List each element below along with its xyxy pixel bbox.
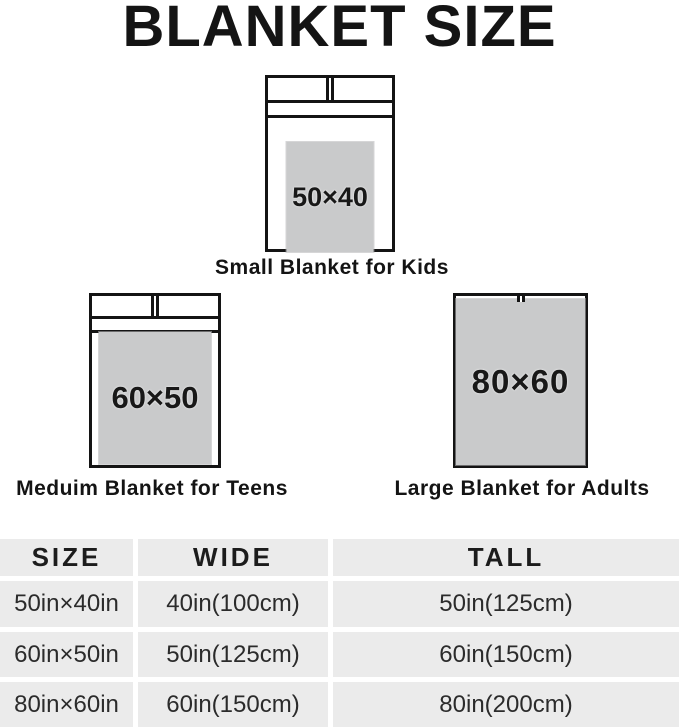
table-header-size: SIZE	[0, 539, 133, 576]
table-cell-tall-r2: 60in(150cm)	[333, 632, 679, 677]
mattress-small: 50×40	[268, 118, 392, 249]
mattress-medium: 60×50	[92, 333, 218, 465]
page-title: BLANKET SIZE	[0, 0, 679, 56]
pillow-divider-icon	[517, 296, 525, 302]
mattress-large: 80×60	[456, 296, 585, 465]
table-cell-size-r1: 50in×40in	[0, 581, 133, 627]
blanket-large: 80×60	[456, 299, 585, 465]
blanket-medium: 60×50	[99, 332, 211, 464]
blanket-size-infographic: BLANKET SIZE 50×40 Small Blanket for Kid…	[0, 0, 679, 728]
table-cell-tall-r3: 80in(200cm)	[333, 682, 679, 727]
table-cell-size-r2: 60in×50in	[0, 632, 133, 677]
blanket-small: 50×40	[287, 142, 374, 252]
table-header-wide: WIDE	[138, 539, 328, 576]
blanket-size-label-medium: 60×50	[111, 380, 198, 416]
pillow-area-small	[268, 78, 392, 103]
pillow-divider-icon	[326, 78, 334, 100]
caption-small: Small Blanket for Kids	[172, 256, 492, 280]
table-cell-wide-r1: 40in(100cm)	[138, 581, 328, 627]
bed-diagram-large: 80×60	[453, 293, 588, 468]
pillow-divider-icon	[151, 296, 159, 316]
table-header-tall: TALL	[333, 539, 679, 576]
table-cell-wide-r2: 50in(125cm)	[138, 632, 328, 677]
sheet-band-small	[268, 103, 392, 118]
bed-diagram-medium: 60×50	[89, 293, 221, 468]
caption-medium: Meduim Blanket for Teens	[0, 477, 312, 501]
table-cell-size-r3: 80in×60in	[0, 682, 133, 727]
size-table: SIZE WIDE TALL 50in×40in 40in(100cm) 50i…	[0, 539, 679, 728]
table-cell-tall-r1: 50in(125cm)	[333, 581, 679, 627]
sheet-band-medium	[92, 319, 218, 333]
bed-diagram-small: 50×40	[265, 75, 395, 252]
pillow-area-medium	[92, 296, 218, 319]
blanket-size-label-small: 50×40	[292, 182, 368, 213]
caption-large: Large Blanket for Adults	[362, 477, 679, 501]
blanket-size-label-large: 80×60	[472, 363, 570, 401]
table-cell-wide-r3: 60in(150cm)	[138, 682, 328, 727]
